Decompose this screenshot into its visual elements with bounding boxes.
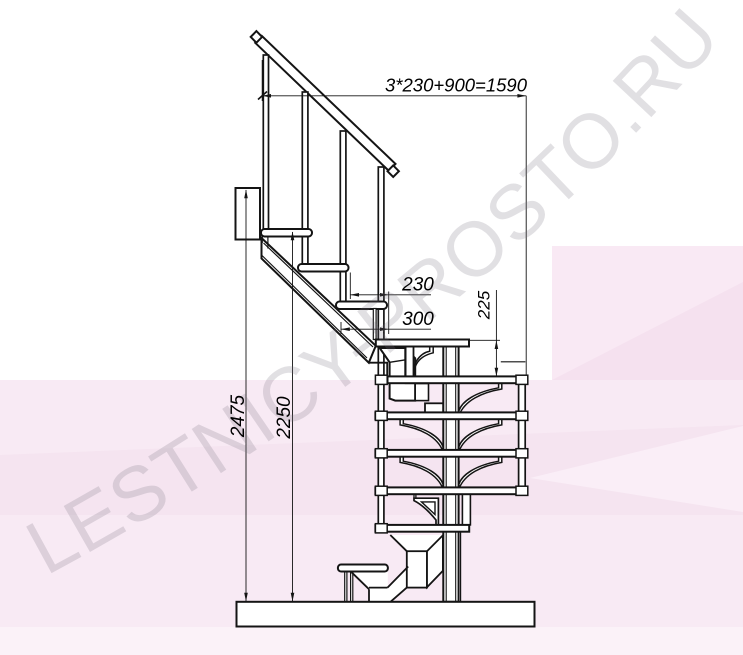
svg-text:2250: 2250 <box>274 396 295 440</box>
svg-text:2475: 2475 <box>228 394 249 438</box>
svg-text:230: 230 <box>401 275 434 296</box>
svg-text:225: 225 <box>475 290 494 320</box>
svg-text:300: 300 <box>402 309 434 330</box>
svg-text:3*230+900=1590: 3*230+900=1590 <box>385 75 528 96</box>
